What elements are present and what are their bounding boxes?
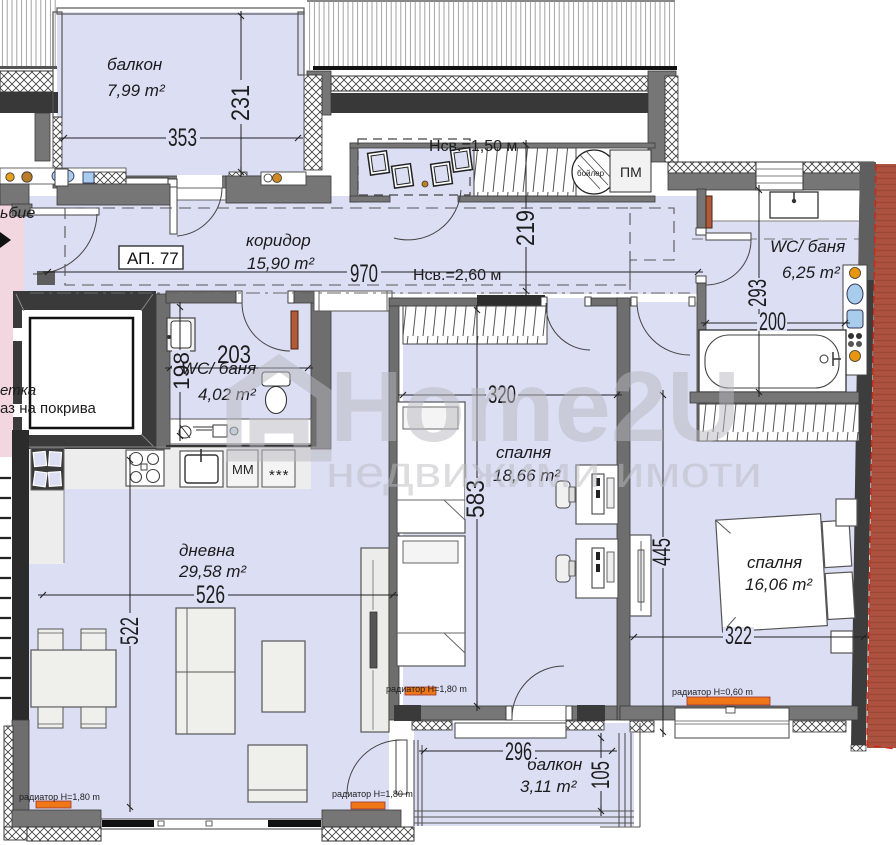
svg-text:Home2U: Home2U (330, 351, 740, 463)
svg-text:етка: етка (0, 382, 36, 399)
svg-text:522: 522 (116, 617, 144, 645)
svg-text:аз на покрива: аз на покрива (0, 400, 97, 417)
svg-text:АП. 77: АП. 77 (127, 249, 179, 268)
svg-text:353: 353 (168, 124, 197, 152)
svg-text:16,06 m²: 16,06 m² (745, 575, 813, 594)
svg-text:293: 293 (744, 279, 772, 307)
svg-text:коридор: коридор (246, 231, 311, 250)
svg-text:219: 219 (512, 210, 540, 246)
svg-text:бойлер: бойлер (577, 169, 605, 178)
svg-text:недвижими имоти: недвижими имоти (326, 448, 762, 497)
svg-text:радиатор H=1,80 m: радиатор H=1,80 m (332, 789, 413, 799)
svg-text:231: 231 (227, 85, 255, 121)
svg-text:7,99 m²: 7,99 m² (107, 81, 166, 100)
svg-text:29,58 m²: 29,58 m² (178, 562, 247, 581)
svg-text:балкон: балкон (107, 55, 163, 74)
svg-text:ММ: ММ (232, 462, 254, 477)
svg-text:105: 105 (587, 761, 615, 789)
svg-text:дневна: дневна (179, 541, 235, 560)
svg-text:200: 200 (759, 308, 786, 336)
svg-text:322: 322 (725, 622, 752, 650)
svg-text:балкон: балкон (527, 755, 583, 774)
svg-text:WC/ баня: WC/ баня (181, 359, 256, 378)
svg-text:ьбие: ьбие (0, 205, 35, 222)
svg-text:***: *** (269, 467, 290, 484)
svg-text:спалня: спалня (747, 553, 802, 572)
svg-text:WC/ баня: WC/ баня (770, 237, 845, 256)
svg-text:Нсв.=1,50 м: Нсв.=1,50 м (429, 138, 517, 155)
svg-text:445: 445 (648, 538, 676, 566)
svg-text:15,90 m²: 15,90 m² (247, 254, 315, 273)
svg-text:радиатор H=1,80 m: радиатор H=1,80 m (386, 684, 467, 694)
svg-text:ПМ: ПМ (620, 164, 642, 180)
svg-text:радиатор H=1,80 m: радиатор H=1,80 m (19, 792, 100, 802)
svg-text:радиатор H=0,60 m: радиатор H=0,60 m (672, 687, 753, 697)
svg-text:970: 970 (350, 260, 378, 288)
svg-text:3,11 m²: 3,11 m² (520, 777, 578, 796)
svg-text:526: 526 (196, 581, 225, 609)
svg-text:6,25 m²: 6,25 m² (782, 263, 841, 282)
svg-text:296: 296 (505, 738, 532, 766)
svg-text:Нсв.=2,60 м: Нсв.=2,60 м (413, 267, 501, 284)
